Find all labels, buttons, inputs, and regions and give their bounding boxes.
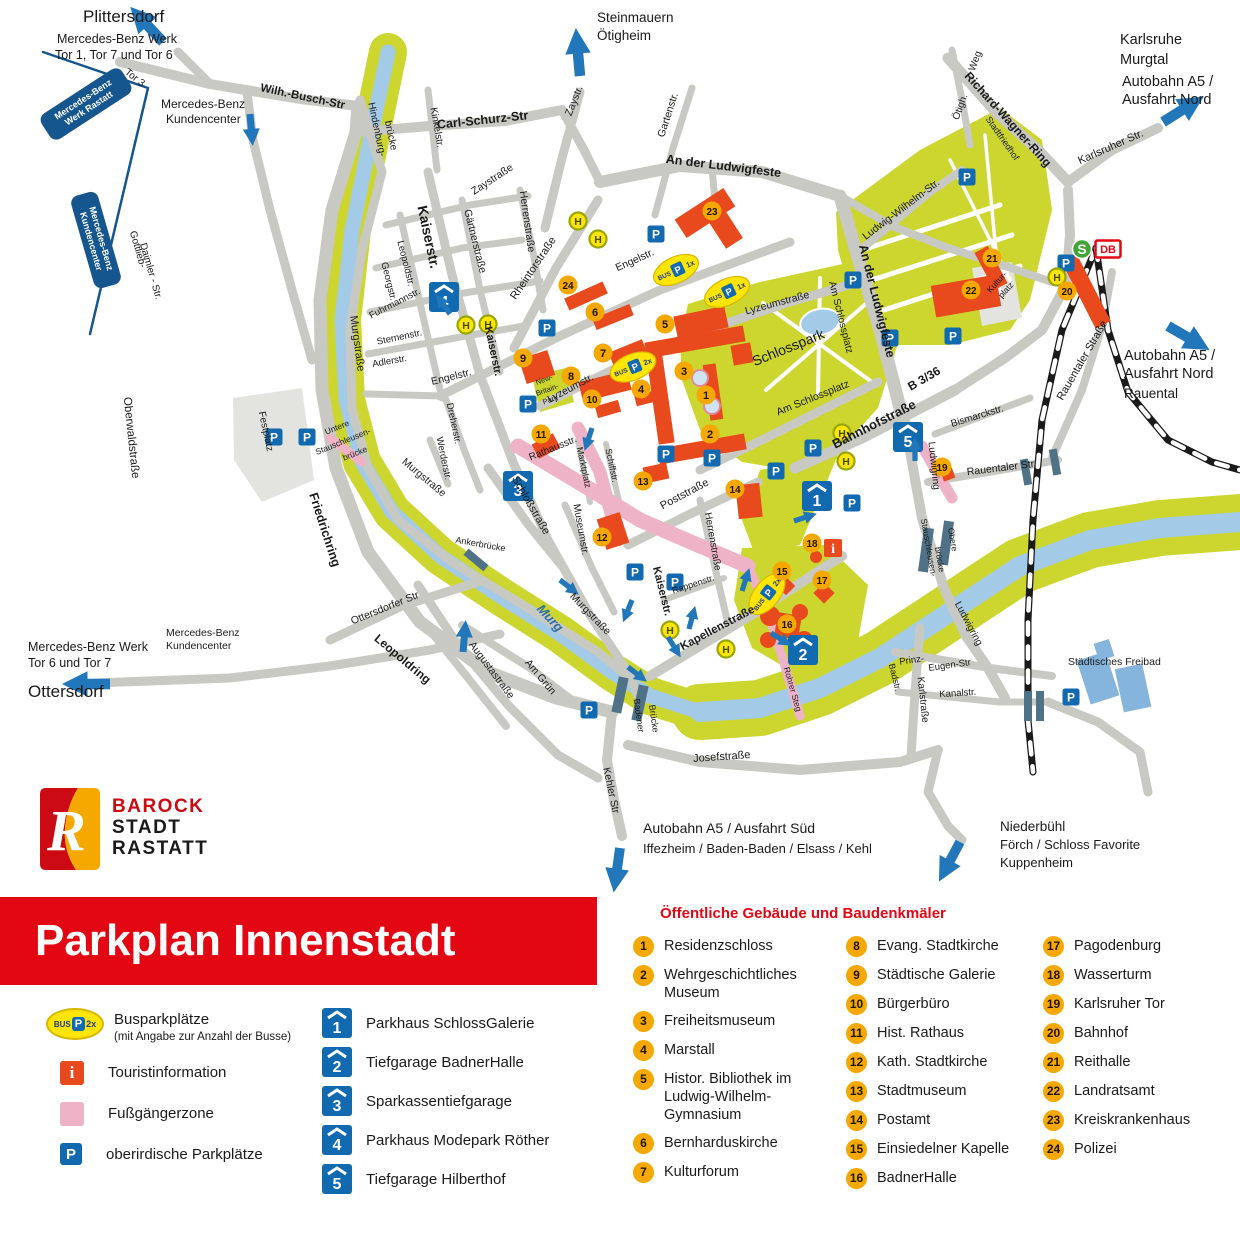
buildings-legend-col-1: 1Residenzschloss2Wehrgeschichtliches Mus… (633, 936, 829, 1191)
poi-number: 22 (965, 286, 977, 297)
building-legend-item: 8Evang. Stadtkirche (846, 936, 1042, 957)
poi-marker: 20 (1058, 282, 1077, 301)
poi-marker: 18 (803, 534, 822, 553)
building-label: Bernharduskirche (664, 1133, 778, 1153)
map-label: Daimler - Str. (137, 242, 164, 301)
poi-number-badge: 3 (633, 1011, 654, 1032)
parking-garage-icon: 1 (802, 481, 832, 511)
poi-marker: 17 (813, 571, 832, 590)
building-label: Postamt (877, 1110, 930, 1130)
garage-legend: 1Parkhaus SchlossGalerie2Tiefgarage Badn… (322, 1008, 622, 1203)
garage-number: 1 (813, 493, 822, 510)
map-label: Kehler Str (600, 766, 622, 815)
bus-stop-icon: H (458, 317, 475, 334)
poi-number-badge: 13 (846, 1081, 867, 1102)
building-legend-item: 20Bahnhof (1043, 1023, 1233, 1044)
building-label: Polizei (1074, 1139, 1117, 1159)
svg-text:4: 4 (333, 1137, 342, 1154)
poi-number: 2 (707, 429, 713, 441)
building-legend-item: 23Kreiskrankenhaus (1043, 1110, 1233, 1131)
building-legend-item: 18Wasserturm (1043, 965, 1233, 986)
poi-number-badge: 4 (633, 1040, 654, 1061)
bus-stop-icon: H (838, 453, 855, 470)
h-text: H (842, 456, 850, 468)
building-legend-item: 17Pagodenburg (1043, 936, 1233, 957)
map-label: Ottersdorf (28, 682, 104, 701)
building-legend-item: 16BadnerHalle (846, 1168, 1042, 1189)
map-label: Iffezheim / Baden-Baden / Elsass / Kehl (643, 841, 872, 856)
map-label: Carl-Schurz-Str (436, 108, 529, 132)
building-label: Einsiedelner Kapelle (877, 1139, 1009, 1159)
tourist-info-icon: i (824, 539, 842, 557)
building-label: Marstall (664, 1040, 715, 1060)
building-legend-item: 9Städtische Galerie (846, 965, 1042, 986)
poi-number-badge: 7 (633, 1162, 654, 1183)
map-label: Kaiserstr. (650, 565, 674, 617)
parking-icon: P (844, 495, 861, 512)
building-legend-item: 2Wehrgeschichtliches Museum (633, 965, 829, 1003)
city-logo: R BAROCK STADT RASTATT (37, 786, 208, 872)
building-legend-item: 19Karlsruher Tor (1043, 994, 1233, 1015)
poi-number: 14 (729, 485, 741, 496)
poi-number-badge: 18 (1043, 965, 1064, 986)
building-legend-item: 10Bürgerbüro (846, 994, 1042, 1015)
poi-number-badge: 22 (1043, 1081, 1064, 1102)
road (928, 750, 962, 840)
parking-icon: P (581, 702, 598, 719)
poi-number-badge: 1 (633, 936, 654, 957)
poi-number-badge: 9 (846, 965, 867, 986)
map-label: Mercedes-Benz (161, 97, 245, 111)
poi-marker: 21 (983, 249, 1002, 268)
map-label: Weg (967, 50, 984, 73)
building-legend-item: 21Reithalle (1043, 1052, 1233, 1073)
poi-number-badge: 20 (1043, 1023, 1064, 1044)
p-text: P (809, 442, 817, 456)
buildings-legend-title: Öffentliche Gebäude und Baudenkmäler (660, 905, 946, 922)
p-text: P (708, 452, 716, 466)
poi-number-badge: 17 (1043, 936, 1064, 957)
legend-busparkplaetze: BUSP2x Busparkplätze (mit Angabe zur Anz… (46, 1008, 326, 1044)
poi-marker: 9 (514, 349, 533, 368)
building-legend-item: 3Freiheitsmuseum (633, 1011, 829, 1032)
garage-legend-item: 5Tiefgarage Hilberthof (322, 1164, 622, 1194)
garage-legend-item: 2Tiefgarage BadnerHalle (322, 1047, 622, 1077)
logo-line-barock: BAROCK (112, 796, 208, 817)
mercedes-label-box: Mercedes-BenzKundencenter (69, 190, 122, 290)
parking-garage-icon: 4 (322, 1125, 352, 1155)
db-icon: DB (1096, 241, 1121, 258)
bus-parking-icon: BUSP2x (46, 1008, 104, 1040)
map-label: B 3/36 (905, 363, 943, 393)
p-text: P (949, 330, 957, 344)
p-text: P (524, 398, 532, 412)
h-text: H (462, 320, 470, 332)
map-label: Friedrichring (306, 491, 343, 569)
building-legend-item: 13Stadtmuseum (846, 1081, 1042, 1102)
map-label: Oberwaldstraße (121, 396, 141, 479)
poi-number: 1 (703, 390, 709, 402)
map-label: Rauental (1124, 386, 1178, 401)
poi-marker: 14 (726, 480, 745, 499)
parking-icon: P (768, 463, 785, 480)
legend-label: Touristinformation (108, 1061, 226, 1083)
map-label: Mercedes-Benz (166, 627, 240, 639)
h-text: H (722, 644, 730, 656)
parking-garage-icon: 1 (322, 1008, 352, 1038)
map-label: Georgstr. (378, 261, 398, 302)
poi-marker: 1 (697, 386, 716, 405)
map-label: Kuppenheim (1000, 855, 1073, 870)
poi-marker: 23 (703, 202, 722, 221)
building-label: Bahnhof (1074, 1023, 1128, 1043)
map-label: Bismarckstr. (950, 403, 1005, 429)
pedestrian-zone-icon (60, 1102, 84, 1126)
direction-arrow (563, 27, 593, 77)
legend-touristinformation: i Touristinformation (46, 1061, 326, 1085)
building-label: Kreiskrankenhaus (1074, 1110, 1190, 1130)
garage-number: 2 (799, 647, 808, 664)
p-text: P (849, 274, 857, 288)
poi-marker: 3 (675, 362, 694, 381)
map-label: Tor 1, Tor 7 und Tor 6 (55, 48, 173, 62)
p-text: P (652, 228, 660, 242)
poi-number: 9 (520, 353, 526, 365)
parking-garage-icon: 5 (322, 1164, 352, 1194)
svg-text:5: 5 (333, 1176, 342, 1193)
building-legend-item: 14Postamt (846, 1110, 1042, 1131)
poi-number-badge: 24 (1043, 1139, 1064, 1160)
poi-number-badge: 10 (846, 994, 867, 1015)
legend-parkplaetze: P oberirdische Parkplätze (46, 1143, 326, 1165)
poi-number: 6 (592, 307, 598, 319)
building-dot (692, 370, 708, 386)
poi-number: 21 (986, 254, 998, 265)
building-label: Landratsamt (1074, 1081, 1155, 1101)
poi-marker: 24 (559, 276, 578, 295)
city-map: BUSP1xBUSP1xBUSP2xBUSP2xPPPPPPPPPPPPPPPP… (0, 0, 1240, 897)
poi-number: 3 (681, 366, 687, 378)
poi-marker: 22 (962, 281, 981, 300)
building-label: Histor. Bibliothek im Ludwig-Wilhelm-Gym… (664, 1069, 829, 1125)
parking-icon: P (704, 450, 721, 467)
poi-marker: 7 (594, 344, 613, 363)
map-label: Ausfahrt Nord (1122, 92, 1211, 108)
building-dot (792, 604, 808, 620)
building-dot (810, 551, 822, 563)
poi-number-badge: 12 (846, 1052, 867, 1073)
legend-label: Fußgängerzone (108, 1102, 214, 1124)
map-label: Plittersdorf (83, 7, 165, 26)
direction-arrow (683, 604, 702, 630)
garage-label: Tiefgarage Hilberthof (366, 1171, 506, 1188)
road (386, 196, 528, 225)
parkplan-poster: { "banner": {"title": "Parkplan Innensta… (0, 0, 1240, 1240)
poi-number-badge: 5 (633, 1069, 654, 1090)
parking-icon: P (520, 396, 537, 413)
poi-marker: 10 (583, 390, 602, 409)
building-label: Evang. Stadtkirche (877, 936, 999, 956)
map-label: Städtisches Freibad (1068, 656, 1161, 668)
map-label: Kundencenter (166, 640, 232, 652)
map-label: Karlsruhe (1120, 32, 1182, 48)
building-legend-item: 6Bernharduskirche (633, 1133, 829, 1154)
parking-icon: P (959, 169, 976, 186)
direction-arrow (242, 113, 262, 146)
poi-number-badge: 8 (846, 936, 867, 957)
poi-marker: 12 (593, 528, 612, 547)
building-legend-item: 5Histor. Bibliothek im Ludwig-Wilhelm-Gy… (633, 1069, 829, 1125)
p-text: P (772, 465, 780, 479)
bus-stop-icon: H (590, 231, 607, 248)
map-label: Mercedes-Benz Werk (28, 640, 149, 654)
building-label: Karlsruher Tor (1074, 994, 1165, 1014)
poi-marker: 15 (773, 562, 792, 581)
building-label: Residenzschloss (664, 936, 773, 956)
garage-label: Sparkassentiefgarage (366, 1093, 512, 1110)
bridge (1036, 691, 1044, 721)
building-legend-item: 4Marstall (633, 1040, 829, 1061)
road (366, 394, 442, 396)
parking-icon: P (299, 429, 316, 446)
p-text: P (631, 566, 639, 580)
building-legend-item: 7Kulturforum (633, 1162, 829, 1183)
map-label: Autobahn A5 / Ausfahrt Süd (643, 820, 815, 836)
building-label: Reithalle (1074, 1052, 1130, 1072)
building-legend-item: 24Polizei (1043, 1139, 1233, 1160)
legend-label: oberirdische Parkplätze (106, 1143, 263, 1165)
poi-number: 10 (586, 395, 598, 406)
poi-number: 13 (637, 477, 649, 488)
poi-number: 18 (806, 539, 818, 550)
parking-garage-icon: 2 (788, 635, 818, 665)
garage-label: Parkhaus Modepark Röther (366, 1132, 549, 1149)
poi-number-badge: 23 (1043, 1110, 1064, 1131)
p-text: P (662, 448, 670, 462)
svg-text:3: 3 (333, 1098, 342, 1115)
map-label: Karlsruher Str. (1076, 127, 1145, 167)
building-legend-item: 12Kath. Stadtkirche (846, 1052, 1042, 1073)
bus-stop-icon: H (570, 213, 587, 230)
road (628, 745, 938, 770)
building (1115, 664, 1152, 713)
poi-number: 20 (1061, 287, 1073, 298)
poi-marker: 5 (656, 315, 675, 334)
logo-line-stadt: STADT (112, 817, 208, 838)
title-banner: Parkplan Innenstadt (0, 897, 597, 985)
buildings-legend-col-3: 17Pagodenburg18Wasserturm19Karlsruher To… (1043, 936, 1233, 1168)
p-text: P (303, 431, 311, 445)
parking-icon: P (627, 564, 644, 581)
map-label: Förch / Schloss Favorite (1000, 837, 1140, 852)
map-label: An der Ludwigfeste (665, 152, 782, 180)
building-label: Kulturforum (664, 1162, 739, 1182)
building-label: Wasserturm (1074, 965, 1152, 985)
building-label: Freiheitsmuseum (664, 1011, 775, 1031)
building-legend-item: 11Hist. Rathaus (846, 1023, 1042, 1044)
poi-number: 12 (596, 533, 608, 544)
map-label: Mercedes-Benz Werk (57, 32, 178, 46)
map-label: Niederbühl (1000, 819, 1065, 834)
road (1048, 702, 1148, 792)
poi-number: 5 (662, 319, 668, 331)
svg-text:1: 1 (333, 1020, 342, 1037)
map-label: Zaystraße (469, 161, 515, 197)
poi-number-badge: 2 (633, 965, 654, 986)
garage-legend-item: 1Parkhaus SchlossGalerie (322, 1008, 622, 1038)
map-label: Autobahn A5 / (1124, 348, 1216, 364)
garage-label: Parkhaus SchlossGalerie (366, 1015, 534, 1032)
building-label: Stadtmuseum (877, 1081, 966, 1101)
poi-number-badge: 19 (1043, 994, 1064, 1015)
direction-arrow (617, 598, 638, 625)
h-text: H (594, 234, 602, 246)
h-text: H (666, 625, 674, 637)
logo-line-rastatt: RASTATT (112, 838, 208, 859)
poi-number: 17 (816, 576, 828, 587)
poi-number-badge: 21 (1043, 1052, 1064, 1073)
poi-marker: 4 (632, 380, 651, 399)
bus-stop-icon: H (718, 641, 735, 658)
map-label: Gärtnerstraße (461, 208, 488, 274)
rastatt-monogram-icon: R (37, 786, 103, 872)
parking-icon: P (945, 328, 962, 345)
p-text: P (1067, 691, 1075, 705)
parking-icon: P (648, 226, 665, 243)
map-label: Engelstr. (614, 246, 656, 274)
map-label: Tor 6 und Tor 7 (28, 656, 111, 670)
h-text: H (574, 216, 582, 228)
garage-label: Tiefgarage BadnerHalle (366, 1054, 524, 1071)
building-label: BadnerHalle (877, 1168, 957, 1188)
svg-text:R: R (46, 798, 86, 863)
poi-marker: 6 (586, 303, 605, 322)
building-label: Bürgerbüro (877, 994, 950, 1014)
mercedes-label-box: Mercedes-BenzWerk Rastatt (38, 65, 135, 142)
tourist-info-icon: i (60, 1061, 84, 1085)
sbahn-icon: S (1073, 240, 1092, 259)
parking-garage-icon: 3 (322, 1086, 352, 1116)
poi-number-badge: 15 (846, 1139, 867, 1160)
garage-legend-item: 3Sparkassentiefgarage (322, 1086, 622, 1116)
legend-fussgaengerzone: Fußgängerzone (46, 1102, 326, 1126)
poi-marker: 11 (532, 425, 551, 444)
parking-icon: P (658, 446, 675, 463)
building-label: Kath. Stadtkirche (877, 1052, 987, 1072)
poi-number: 4 (638, 384, 645, 396)
poi-number: 11 (536, 430, 547, 441)
map-label: Kundencenter (166, 112, 241, 126)
p-text: P (963, 171, 971, 185)
parking-icon: P (1063, 689, 1080, 706)
p-text: P (543, 322, 551, 336)
parking-icon: P (805, 440, 822, 457)
building-label: Städtische Galerie (877, 965, 995, 985)
poi-number-badge: 16 (846, 1168, 867, 1189)
info-text: i (831, 542, 835, 557)
symbol-legend: BUSP2x Busparkplätze (mit Angabe zur Anz… (46, 1008, 326, 1182)
poi-number-badge: 14 (846, 1110, 867, 1131)
poi-marker: 13 (634, 472, 653, 491)
map-label: Autobahn A5 / (1122, 74, 1214, 90)
h-text: H (1053, 272, 1061, 284)
bridge (1024, 691, 1032, 721)
svg-text:2: 2 (333, 1059, 342, 1076)
poi-marker: 16 (778, 615, 797, 634)
parking-icon: P (539, 320, 556, 337)
map-label: Steinmauern (597, 10, 674, 25)
garage-legend-item: 4Parkhaus Modepark Röther (322, 1125, 622, 1155)
map-label: Dreherstr. (444, 402, 463, 445)
building-label: Pagodenburg (1074, 936, 1161, 956)
building-label: Wehrgeschichtliches Museum (664, 965, 829, 1003)
poi-marker: 2 (701, 425, 720, 444)
direction-arrow (602, 846, 632, 894)
legend-label: Busparkplätze (mit Angabe zur Anzahl der… (114, 1008, 291, 1044)
db-text: DB (1100, 244, 1116, 256)
poi-number-badge: 6 (633, 1133, 654, 1154)
poi-number: 24 (562, 281, 574, 292)
building-legend-item: 1Residenzschloss (633, 936, 829, 957)
map-label: Zaystr. (563, 84, 586, 118)
direction-arrow (928, 836, 970, 887)
map-label: Ötigheim (597, 28, 651, 43)
parking-icon: P (60, 1143, 82, 1165)
parking-garage-icon: 2 (322, 1047, 352, 1077)
building-legend-item: 15Einsiedelner Kapelle (846, 1139, 1042, 1160)
poi-number: 16 (781, 620, 793, 631)
poi-number: 7 (600, 348, 606, 360)
poi-number: 15 (776, 567, 788, 578)
poi-number-badge: 11 (846, 1023, 867, 1044)
s-text: S (1077, 241, 1086, 257)
building-legend-item: 22Landratsamt (1043, 1081, 1233, 1102)
poi-number: 23 (706, 207, 718, 218)
page-title: Parkplan Innenstadt (0, 897, 597, 985)
map-label: Ausfahrt Nord (1124, 366, 1213, 382)
parking-icon: P (845, 272, 862, 289)
p-text: P (848, 497, 856, 511)
map-label: Murgtal (1120, 52, 1168, 68)
p-text: P (585, 704, 593, 718)
buildings-legend-col-2: 8Evang. Stadtkirche9Städtische Galerie10… (846, 936, 1042, 1197)
p-text: P (1062, 257, 1070, 271)
building-label: Hist. Rathaus (877, 1023, 964, 1043)
